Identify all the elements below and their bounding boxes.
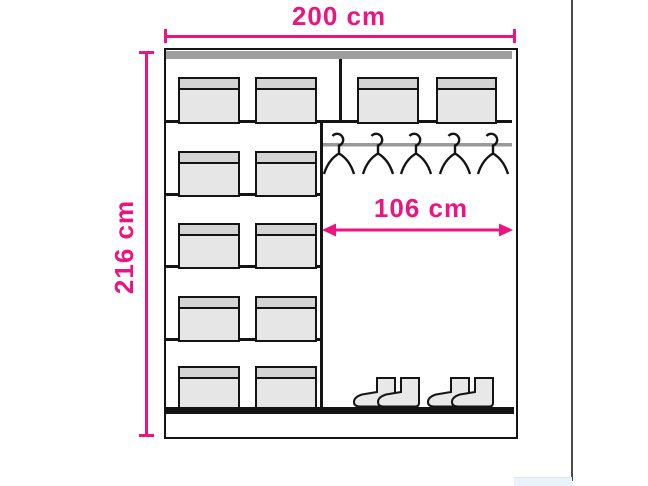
hanger-icon (319, 126, 359, 178)
storage-box (178, 366, 240, 412)
storage-box (436, 77, 497, 124)
storage-box (255, 296, 317, 342)
boot-icon (450, 377, 496, 410)
storage-box-lid (257, 298, 315, 309)
storage-box (255, 77, 317, 124)
storage-box-lid (359, 79, 417, 90)
hanger-icon (358, 126, 398, 178)
storage-box (255, 366, 317, 412)
storage-box-lid (180, 79, 238, 90)
storage-box-lid (180, 368, 238, 379)
page-corner-artifact (514, 477, 572, 486)
width-dimension-tick-right (513, 29, 516, 43)
height-dimension-line (145, 51, 148, 437)
hanger-icon (435, 126, 475, 178)
storage-box-lid (257, 225, 315, 236)
width-dimension-label: 200 cm (292, 3, 386, 29)
storage-box (178, 223, 240, 269)
width-dimension-tick-left (164, 29, 167, 43)
hanging-width-arrow (321, 222, 514, 238)
hanger-icon (473, 126, 513, 178)
boot-icon (376, 377, 422, 410)
height-dimension-label: 216 cm (111, 200, 137, 294)
hanger-icon (396, 126, 436, 178)
storage-box-lid (180, 225, 238, 236)
top-panel (166, 51, 512, 59)
top-section-divider (339, 59, 342, 120)
storage-box-lid (257, 368, 315, 379)
storage-box-lid (257, 153, 315, 164)
wardrobe-dimension-diagram: 200 cm 216 cm 106 cm (0, 0, 648, 486)
storage-box-lid (180, 153, 238, 164)
height-dimension-tick-top (139, 51, 154, 54)
hanging-width-dimension-label: 106 cm (374, 195, 468, 221)
storage-box (178, 151, 240, 197)
height-dimension-tick-bottom (139, 434, 154, 437)
storage-box-lid (257, 79, 315, 90)
storage-box (357, 77, 419, 124)
storage-box (255, 223, 317, 269)
storage-box (178, 77, 240, 124)
storage-box (178, 296, 240, 342)
storage-box-lid (180, 298, 238, 309)
width-dimension-line (164, 35, 516, 38)
page-border-line (571, 0, 573, 481)
plinth (164, 414, 518, 439)
storage-box-lid (438, 79, 495, 90)
storage-box (255, 151, 317, 197)
